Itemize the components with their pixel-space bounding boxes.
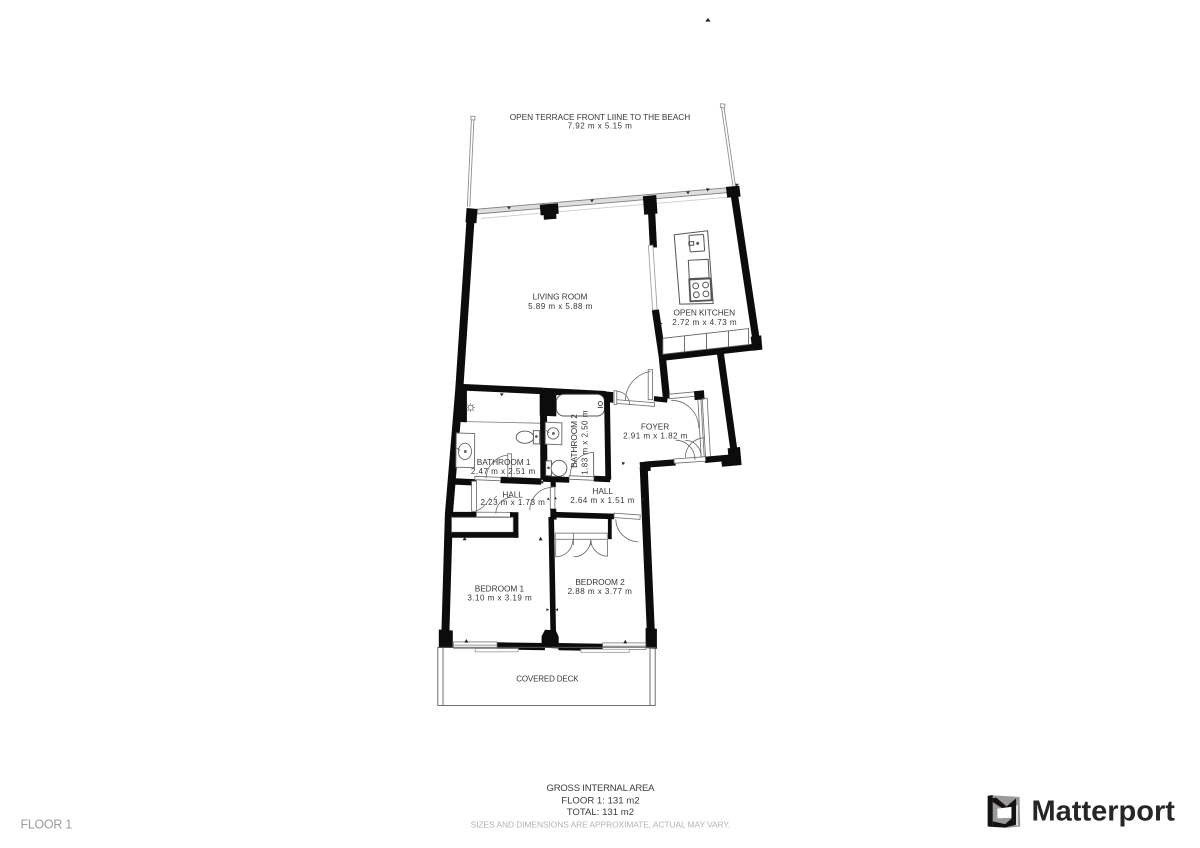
svg-text:FLOOR 1: FLOOR 1	[21, 818, 73, 832]
svg-text:COVERED DECK: COVERED DECK	[516, 674, 579, 683]
svg-text:2.23 m x 1.73 m: 2.23 m x 1.73 m	[481, 498, 546, 507]
svg-text:FLOOR 1: 131 m2: FLOOR 1: 131 m2	[561, 796, 639, 807]
svg-text:HALL: HALL	[592, 486, 613, 496]
svg-text:GROSS INTERNAL AREA: GROSS INTERNAL AREA	[547, 783, 656, 794]
svg-text:OPEN KITCHEN: OPEN KITCHEN	[673, 307, 735, 317]
svg-text:BATHROOM 2: BATHROOM 2	[569, 414, 579, 468]
svg-text:2.47 m x 2.51 m: 2.47 m x 2.51 m	[471, 467, 536, 476]
svg-text:Matterport: Matterport	[1032, 796, 1176, 828]
svg-text:FOYER: FOYER	[641, 421, 669, 431]
svg-text:2.91 m x 1.82 m: 2.91 m x 1.82 m	[623, 431, 688, 440]
svg-text:SIZES AND DIMENSIONS ARE APPRO: SIZES AND DIMENSIONS ARE APPROXIMATE, AC…	[471, 820, 730, 830]
svg-text:2.72 m x 4.73 m: 2.72 m x 4.73 m	[672, 318, 737, 327]
svg-text:2.64 m x 1.51 m: 2.64 m x 1.51 m	[570, 496, 635, 505]
svg-text:5.89 m x 5.88 m: 5.89 m x 5.88 m	[528, 302, 593, 311]
svg-text:LIVING ROOM: LIVING ROOM	[533, 292, 588, 302]
svg-text:TOTAL: 131 m2: TOTAL: 131 m2	[567, 807, 634, 818]
svg-text:1.83 m x 2.50 m: 1.83 m x 2.50 m	[581, 410, 590, 475]
svg-text:BATHROOM 1: BATHROOM 1	[477, 457, 531, 467]
svg-text:BEDROOM 2: BEDROOM 2	[575, 577, 625, 587]
svg-text:3.10 m x 3.19 m: 3.10 m x 3.19 m	[467, 594, 532, 603]
svg-text:2.88 m x 3.77 m: 2.88 m x 3.77 m	[568, 587, 633, 596]
svg-text:OPEN TERRACE FRONT LIINE TO TH: OPEN TERRACE FRONT LIINE TO THE BEACH	[510, 112, 690, 122]
svg-text:BEDROOM 1: BEDROOM 1	[475, 583, 525, 593]
svg-text:7.92 m x 5.15 m: 7.92 m x 5.15 m	[568, 122, 633, 131]
